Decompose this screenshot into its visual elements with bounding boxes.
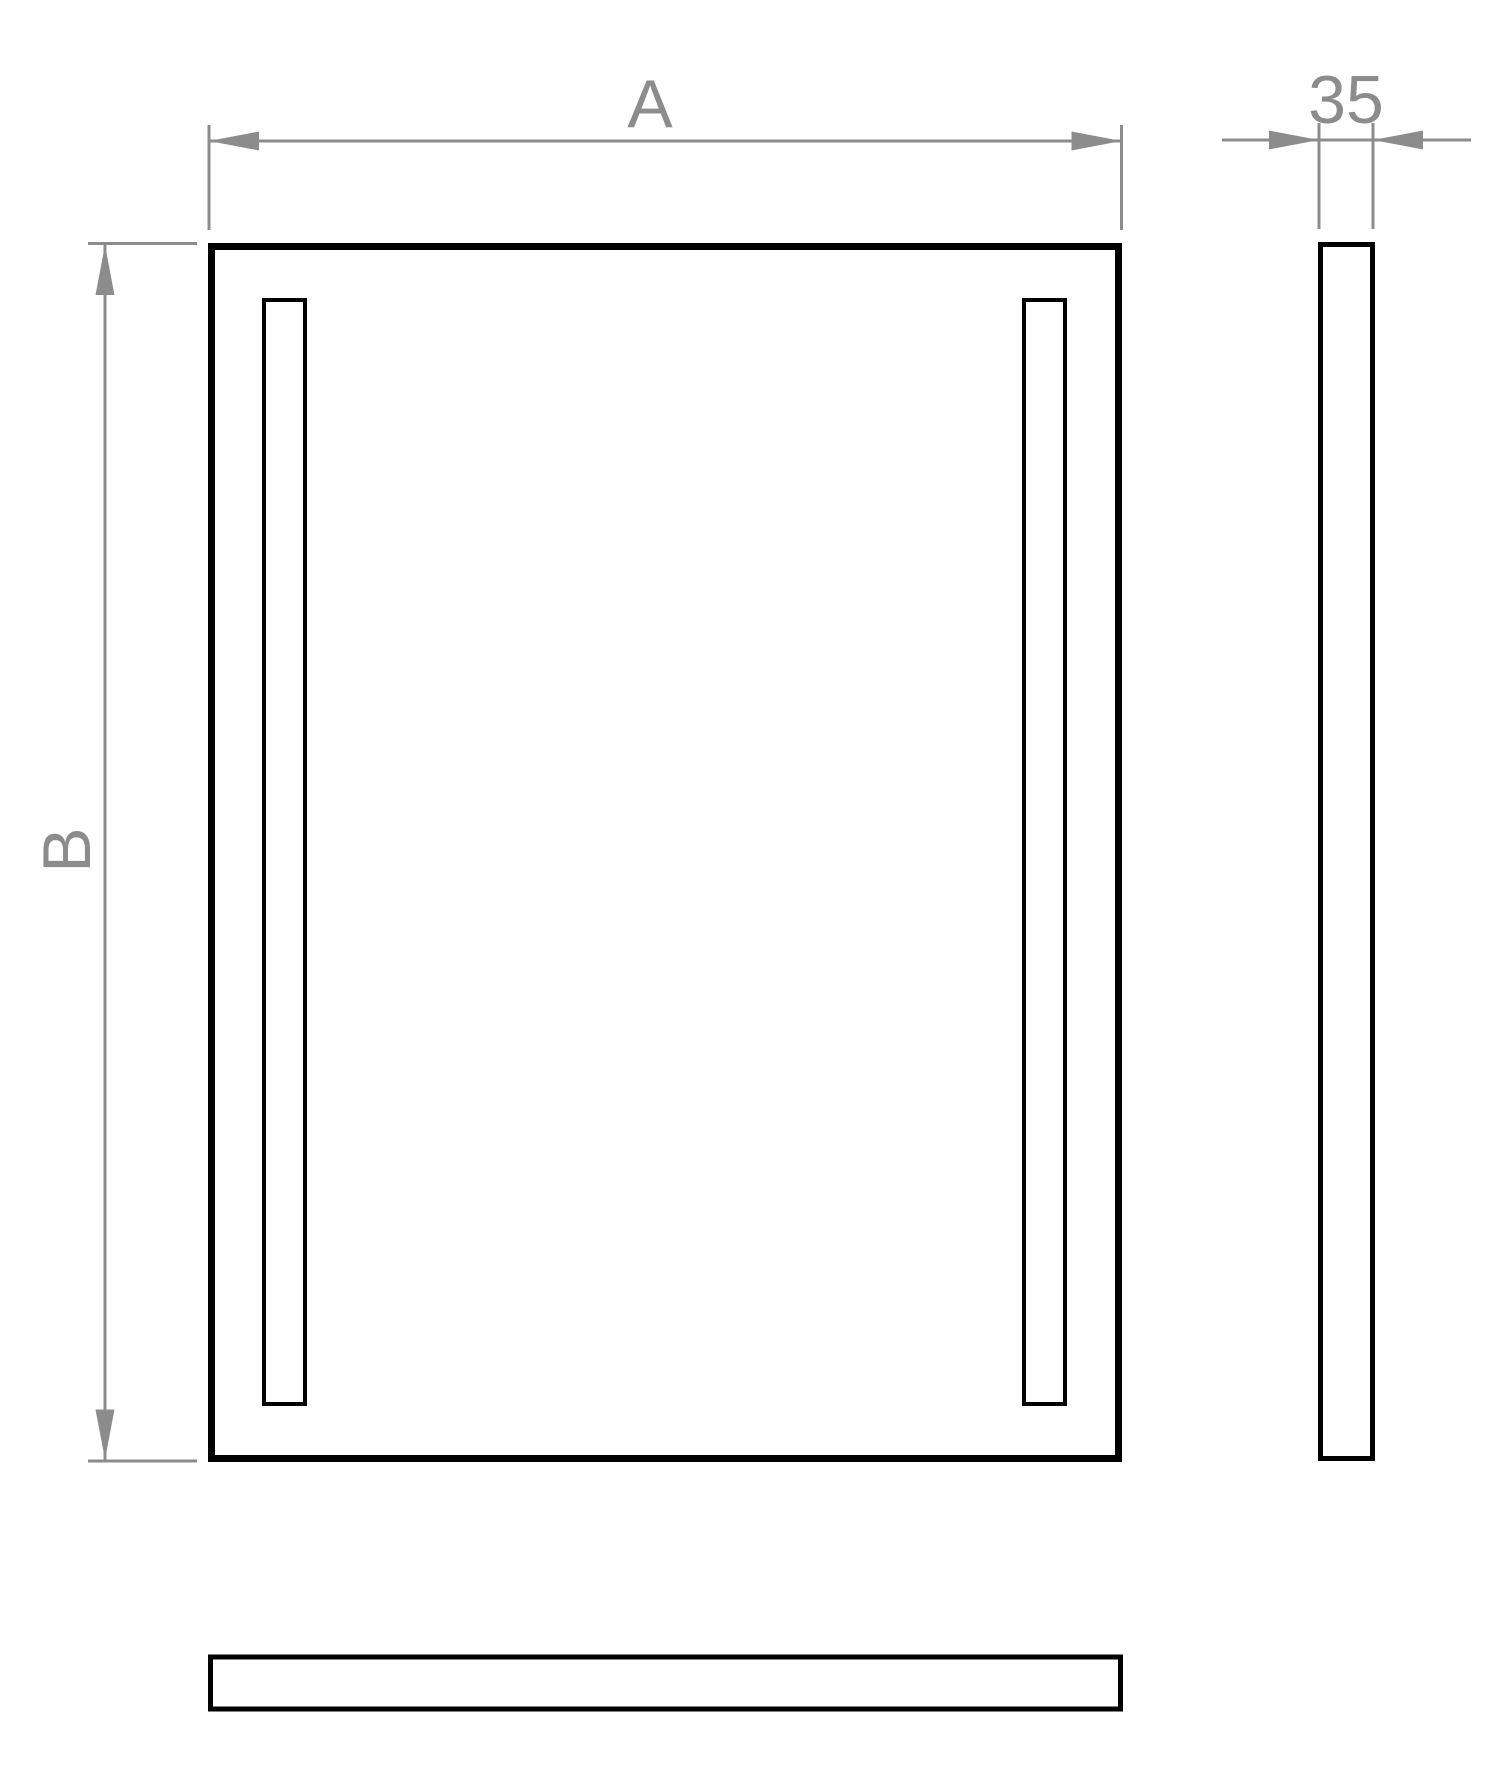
mirror-front-outline (212, 247, 1119, 1459)
bottom-view (211, 1657, 1121, 1709)
arrowhead-up-icon (96, 245, 115, 295)
mirror-bottom-outline (211, 1657, 1121, 1709)
dimension-depth: 35 (1222, 62, 1471, 229)
arrowhead-down-icon (96, 1410, 115, 1460)
mirror-technical-drawing: A B 35 (0, 0, 1500, 1781)
arrowhead-left-icon (209, 132, 259, 151)
led-strip-left (264, 300, 305, 1404)
dimension-width-label: A (627, 66, 673, 142)
led-strip-right (1024, 300, 1065, 1404)
dimension-height-label: B (29, 827, 105, 872)
arrowhead-right-icon (1072, 132, 1122, 151)
dimension-depth-label: 35 (1308, 62, 1384, 138)
mirror-side-outline (1321, 245, 1373, 1459)
dimension-width: A (209, 66, 1122, 230)
dimension-height: B (29, 244, 197, 1462)
front-view (212, 247, 1119, 1459)
side-view (1321, 245, 1373, 1459)
